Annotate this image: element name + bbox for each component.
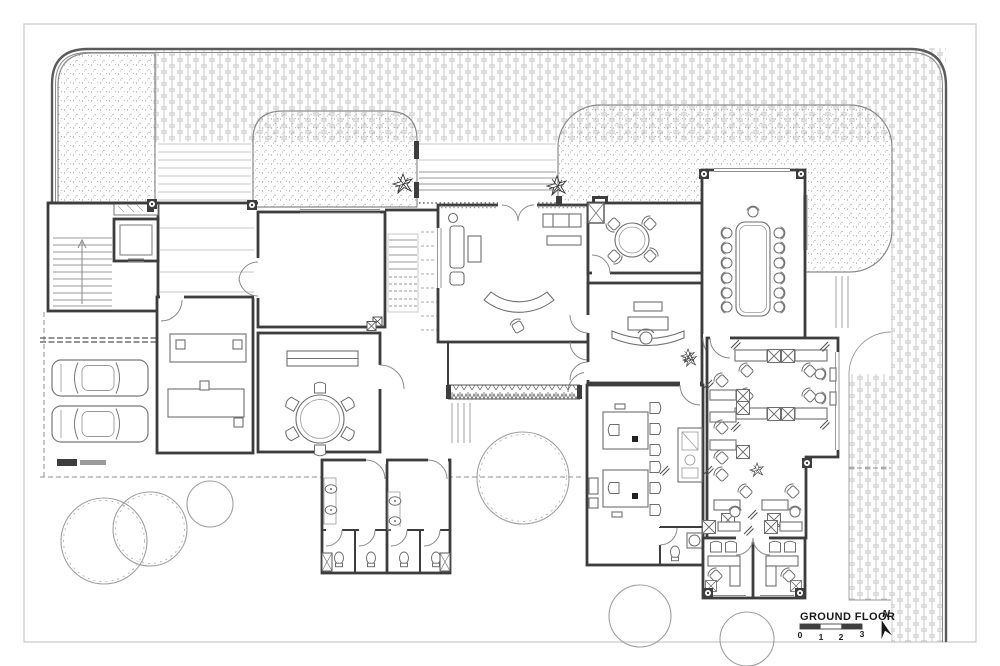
tree-symbol <box>609 585 671 647</box>
lawn-entry-west <box>253 111 417 207</box>
meeting-room <box>588 203 702 277</box>
washbasin-symbol <box>325 485 337 493</box>
title-block: GROUND FLOOR 0 1 2 3 N <box>798 608 896 642</box>
stair-lift-block <box>48 203 158 311</box>
washbasin-symbol <box>389 497 401 505</box>
elevator <box>114 204 158 262</box>
hedge-row <box>448 385 580 399</box>
cabin-manager <box>570 283 702 383</box>
dining-table <box>296 395 344 443</box>
open-office <box>681 334 842 538</box>
drawing-title: GROUND FLOOR <box>800 611 895 623</box>
reception <box>435 201 592 392</box>
tree-symbol <box>61 498 147 584</box>
tree-symbol <box>477 432 569 524</box>
credenza <box>678 428 702 482</box>
conference-table <box>736 222 770 316</box>
floor-plan-sheet: GROUND FLOOR 0 1 2 3 N <box>0 0 1000 666</box>
wc-symbol <box>400 552 409 567</box>
washbasin-symbol <box>325 506 337 514</box>
courtyard <box>446 342 582 443</box>
carport <box>52 360 148 466</box>
car-symbol <box>52 360 148 396</box>
wc-symbol <box>367 552 376 567</box>
tree-symbol <box>187 481 233 527</box>
wc-symbol <box>432 552 441 567</box>
entrance-steps <box>419 172 556 190</box>
side-stair <box>385 210 438 312</box>
scale-label-2: 2 <box>839 632 844 642</box>
washbasin-symbol <box>389 517 401 525</box>
credenza <box>628 317 668 330</box>
round-table <box>615 223 649 257</box>
dining-room <box>258 322 404 456</box>
office-west <box>157 293 253 453</box>
work-table <box>168 389 244 417</box>
scale-label-0: 0 <box>798 630 803 640</box>
hall <box>239 210 385 328</box>
wc-symbol <box>671 546 680 561</box>
scale-label-1: 1 <box>819 632 824 642</box>
tree-symbol <box>113 492 187 566</box>
north-label: N <box>882 608 890 620</box>
tree-symbol <box>720 612 774 666</box>
walkway-steps <box>836 276 848 328</box>
scale-bar: 0 1 2 3 <box>798 624 865 642</box>
ground-floor-plan: GROUND FLOOR 0 1 2 3 N <box>0 0 1000 666</box>
car-symbol <box>52 406 148 442</box>
lawn-northwest <box>58 53 155 205</box>
wc-symbol <box>335 552 344 567</box>
scale-label-3: 3 <box>860 629 865 639</box>
office-south <box>587 381 703 565</box>
toilets <box>322 456 450 573</box>
